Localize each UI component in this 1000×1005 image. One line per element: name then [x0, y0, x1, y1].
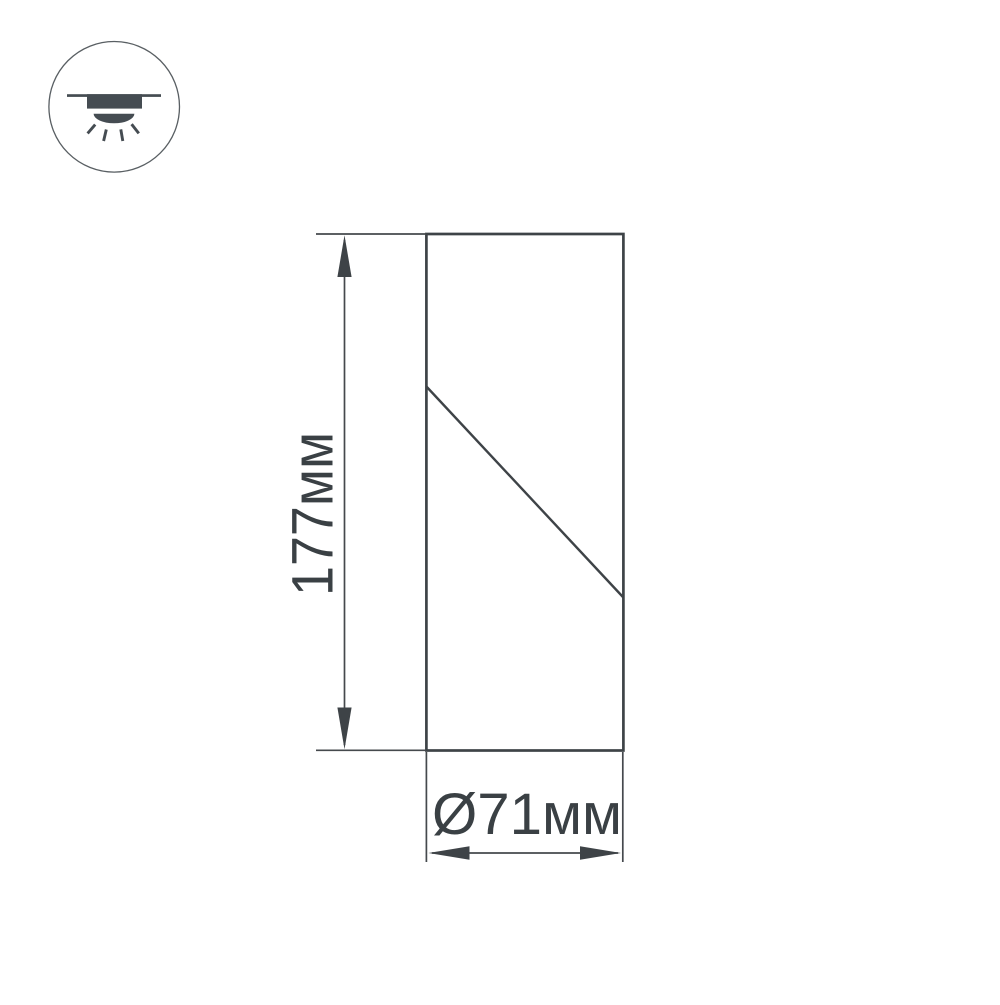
svg-text:177мм: 177мм — [281, 432, 346, 596]
svg-text:Ø71мм: Ø71мм — [432, 782, 622, 847]
